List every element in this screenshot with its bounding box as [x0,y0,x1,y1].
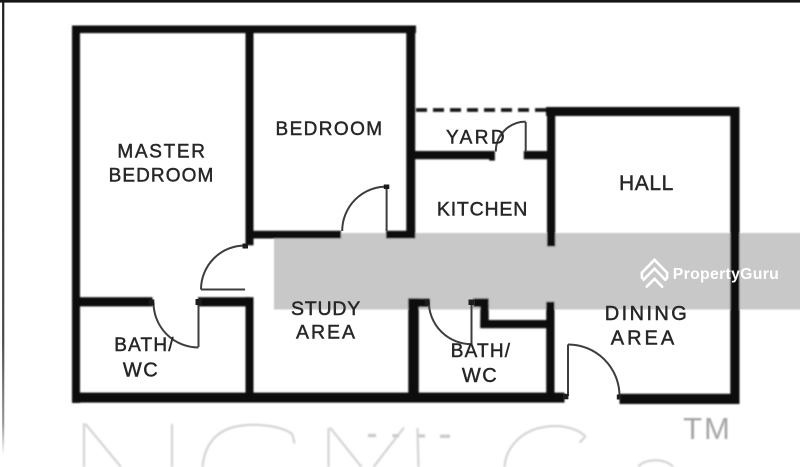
svg-text:DINING: DINING [605,303,689,325]
svg-text:KITCHEN: KITCHEN [437,198,528,220]
svg-text:WC: WC [123,360,159,382]
svg-text:AREA: AREA [296,322,357,344]
svg-text:BATH/: BATH/ [114,335,175,356]
svg-text:AREA: AREA [611,328,677,350]
svg-text:BATH/: BATH/ [451,341,512,362]
svg-text:BEDROOM: BEDROOM [109,166,215,187]
svg-text:TM: TM [683,411,732,446]
svg-text:HALL: HALL [619,172,674,195]
svg-text:PropertyGuru: PropertyGuru [673,266,779,283]
svg-text:MASTER: MASTER [117,142,206,163]
svg-text:STUDY: STUDY [291,298,361,320]
svg-text:YARD: YARD [446,128,507,149]
svg-text:BEDROOM: BEDROOM [276,119,384,140]
svg-text:WC: WC [462,365,498,387]
